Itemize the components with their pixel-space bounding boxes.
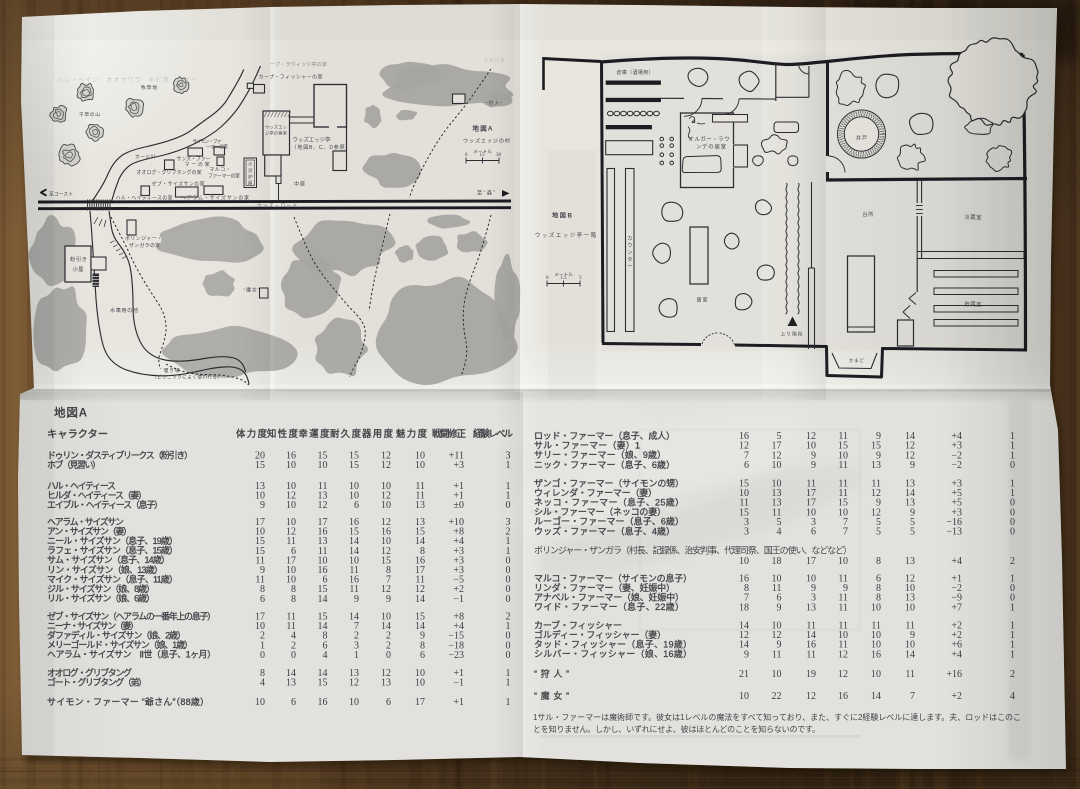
svg-text:ゼブ・サイズサンの家: ゼブ・サイズサンの家 [152,181,205,188]
svg-text:水車用の池: 水車用の池 [110,306,138,314]
svg-text:マーの家: マーの家 [185,161,210,168]
svg-text:サンズ・ファー: サンズ・ファー [177,156,211,163]
svg-text:ポリンジャー・: ポリンジャー・ [125,235,162,242]
svg-text:牧草地: 牧草地 [141,84,157,91]
svg-text:ーマーの家: ーマーの家 [206,143,228,150]
svg-text:カ: カ [627,235,632,242]
svg-text:ザンガラの家: ザンガラの家 [129,242,160,249]
svg-text:タ: タ [627,255,632,263]
svg-text:ー: ー [627,264,632,270]
svg-text:ハル・ヘイティースの家: ハル・ヘイティースの家 [116,195,173,202]
svg-text:堰き場: 堰き場 [164,367,180,374]
svg-text:オオログ・グリブタングの家: オオログ・グリブタングの家 [137,169,202,176]
svg-text:ン: ン [627,250,632,256]
svg-text:ンデの居室: ンデの居室 [696,143,727,151]
svg-text:ウッズエッジ亭一階: ウッズエッジ亭一階 [535,231,597,239]
svg-text:マルコ・: マルコ・ [210,167,231,173]
svg-text:サイモン・ファ: サイモン・ファ [193,139,222,145]
svg-text:ウ: ウ [627,241,632,249]
svg-text:地図B: 地図B [552,212,573,220]
svg-text:カージ川: カージ川 [135,154,155,160]
svg-text:倉庫（酒場用）: 倉庫（酒場用） [617,69,654,76]
svg-text:居室: 居室 [697,297,708,304]
svg-text:1.5: 1.5 [560,276,567,281]
svg-text:オルガー・ラウ: オルガー・ラウ [689,135,730,143]
